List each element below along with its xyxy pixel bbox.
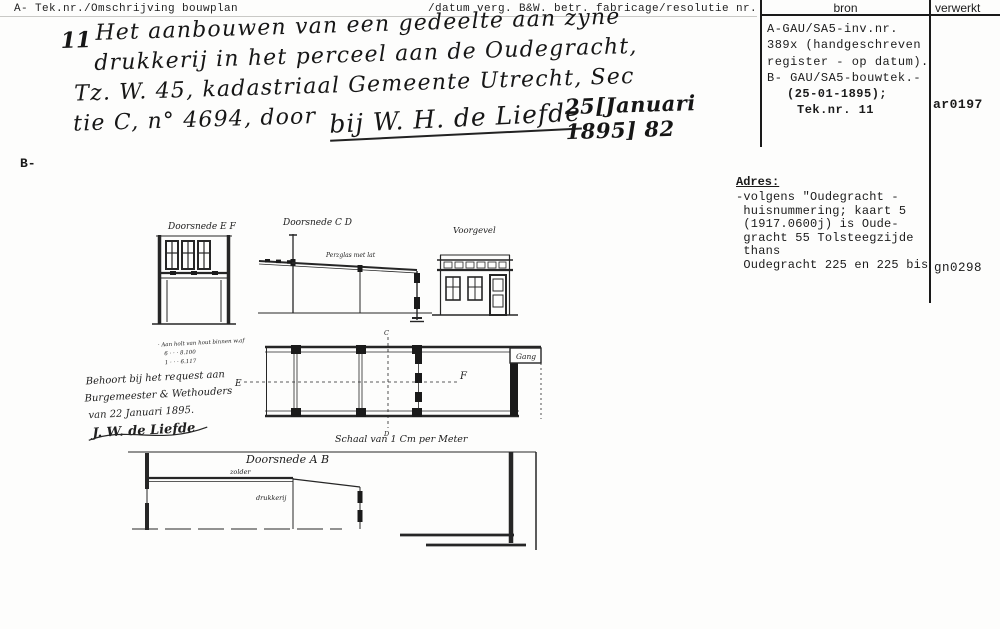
drawing-doorsnede-ab: Doorsnede A B zolder drukkerij [128,452,536,550]
bron-line: Tek.nr. 11 [767,102,929,118]
measurement-note: 6 · · · 8.100 [164,350,196,358]
measurement-note: 1 · · · 6.117 [165,359,197,367]
label-doorsnede-cd: Doorsnede C D [282,218,352,228]
window-icon [446,277,482,300]
column-header-bron: bron [762,1,929,15]
verwerkt-code-gn: gn0298 [934,261,982,275]
request-note-line: Behoort bij het request aan [84,369,225,387]
request-note-line: Burgemeester & Wethouders [83,386,232,405]
architectural-drawing: Doorsnede E F Doorsnede C D Perzglas met… [70,205,570,583]
bron-line: B- GAU/SA5-bouwtek.- [767,70,929,86]
adres-line: (1917.0600j) is Oude- [736,218,928,232]
gang-label: Gang [516,352,536,361]
adres-title: Adres: [736,175,928,189]
label-doorsnede-ab: Doorsnede A B [245,453,329,466]
measurement-note: · Aan holt van hout binnen w.af [158,338,246,349]
scale-caption: Schaal van 1 Cm per Meter [335,434,469,445]
roof-note: Perzglas met lat [325,252,376,259]
request-note: · Aan holt van hout binnen w.af 6 · · · … [81,338,250,441]
adres-line: -volgens "Oudegracht - [736,191,928,205]
adres-block: Adres: -volgens "Oudegracht - huisnummer… [736,175,928,272]
adres-line: Oudegracht 225 en 225 bis [736,259,928,273]
applicant-signature: bij W. H. de Liefde [329,98,582,142]
ab-note-lower: drukkerij [256,494,286,502]
plan-number: 11 [60,27,91,54]
marker-e: E [234,379,242,389]
section-b-label: B- [20,156,36,171]
bron-line: (25-01-1895); [767,86,929,102]
door-icon [490,275,506,315]
bron-line: register - op datum). [767,54,929,70]
bron-line: 389x (handgeschreven [767,37,929,53]
transom-windows-icon [444,262,506,268]
label-doorsnede-ef: Doorsnede E F [167,222,236,232]
verwerkt-code-ar: ar0197 [933,97,983,112]
adres-line: thans [736,245,928,259]
bron-entry: A-GAU/SA5-inv.nr. 389x (handgeschreven r… [767,21,929,119]
adres-line: huisnummering; kaart 5 [736,205,928,219]
ab-note-upper: zolder [229,468,251,476]
drawing-doorsnede-cd: Doorsnede C D Perzglas met lat [258,218,432,322]
description-line: tie C, n° 4694, door [73,104,317,137]
marker-f: F [459,371,468,382]
handwritten-date: 25[Januari 1895] 82 [565,88,764,144]
window-icon [166,241,210,269]
drawing-voorgevel: Voorgevel [432,226,518,315]
marker-c: C [384,329,389,337]
drawing-floor-plan: Gang C D E F Schaal van 1 Cm per Meter [234,329,541,445]
request-note-line: van 22 Januari 1895. [88,405,194,422]
note-signature: J. W. de Liefde [89,421,196,442]
drawing-doorsnede-ef: Doorsnede E F [152,222,236,324]
header-left: A- Tek.nr./Omschrijving bouwplan [14,3,238,15]
column-header-verwerkt: verwerkt [935,1,980,15]
bron-line: A-GAU/SA5-inv.nr. [767,21,929,37]
table-border-middle [929,0,931,303]
label-voorgevel: Voorgevel [453,226,496,236]
adres-line: gracht 55 Tolsteegzijde [736,232,928,246]
